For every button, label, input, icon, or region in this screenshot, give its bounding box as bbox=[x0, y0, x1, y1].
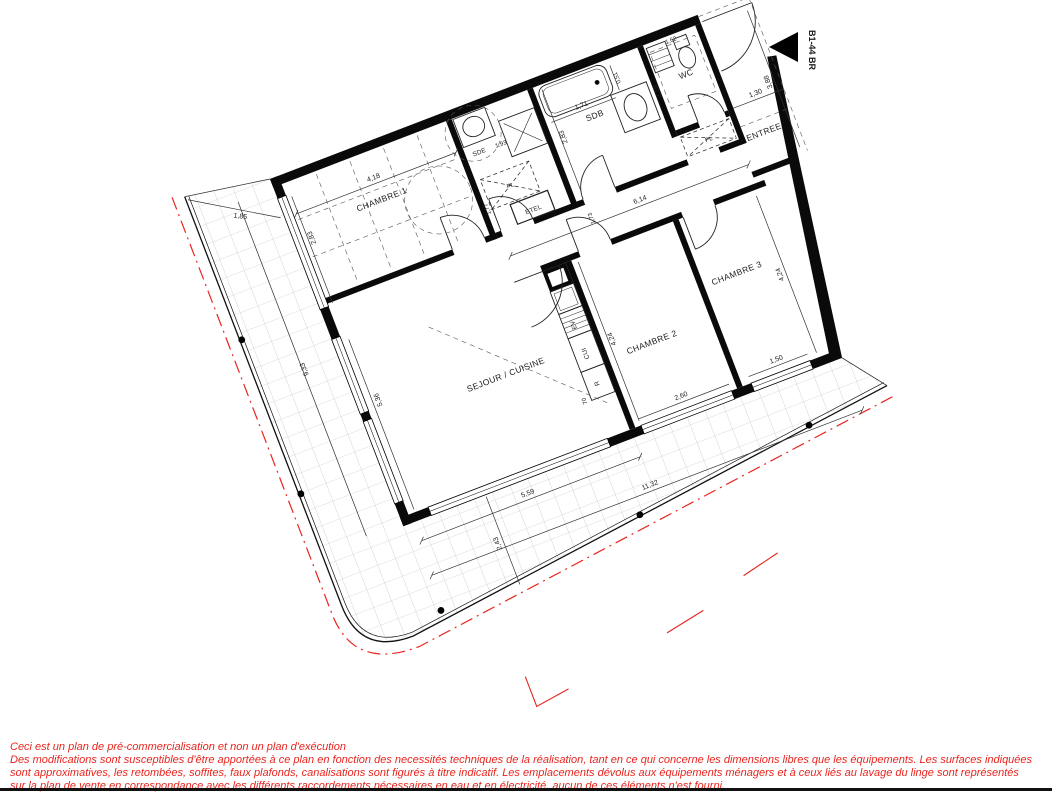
red-survey-marks bbox=[516, 553, 798, 707]
disclaimer-line-1: Ceci est un plan de pré-commercialisatio… bbox=[10, 741, 1046, 754]
disclaimer-block: Ceci est un plan de pré-commercialisatio… bbox=[10, 741, 1046, 793]
disclaimer-line-3: sont approximatives, les retombées, soff… bbox=[10, 767, 1046, 780]
unit-reference: B1-44 BR bbox=[807, 30, 817, 71]
sheet-bottom-rule bbox=[0, 788, 1052, 791]
disclaimer-line-2: Des modifications sont susceptibles d'êt… bbox=[10, 754, 1046, 767]
plan-sheet: 4,18 2,83 1,85 9,33 5,36 1,71 0,51 2,83 … bbox=[0, 0, 1052, 800]
rotated-plan: 4,18 2,83 1,85 9,33 5,36 1,71 0,51 2,83 … bbox=[172, 0, 963, 740]
disclaimer-line-4: sur la plan de vente en correspondance a… bbox=[10, 780, 1046, 793]
floor-plan-canvas: 4,18 2,83 1,85 9,33 5,36 1,71 0,51 2,83 … bbox=[0, 0, 1052, 740]
